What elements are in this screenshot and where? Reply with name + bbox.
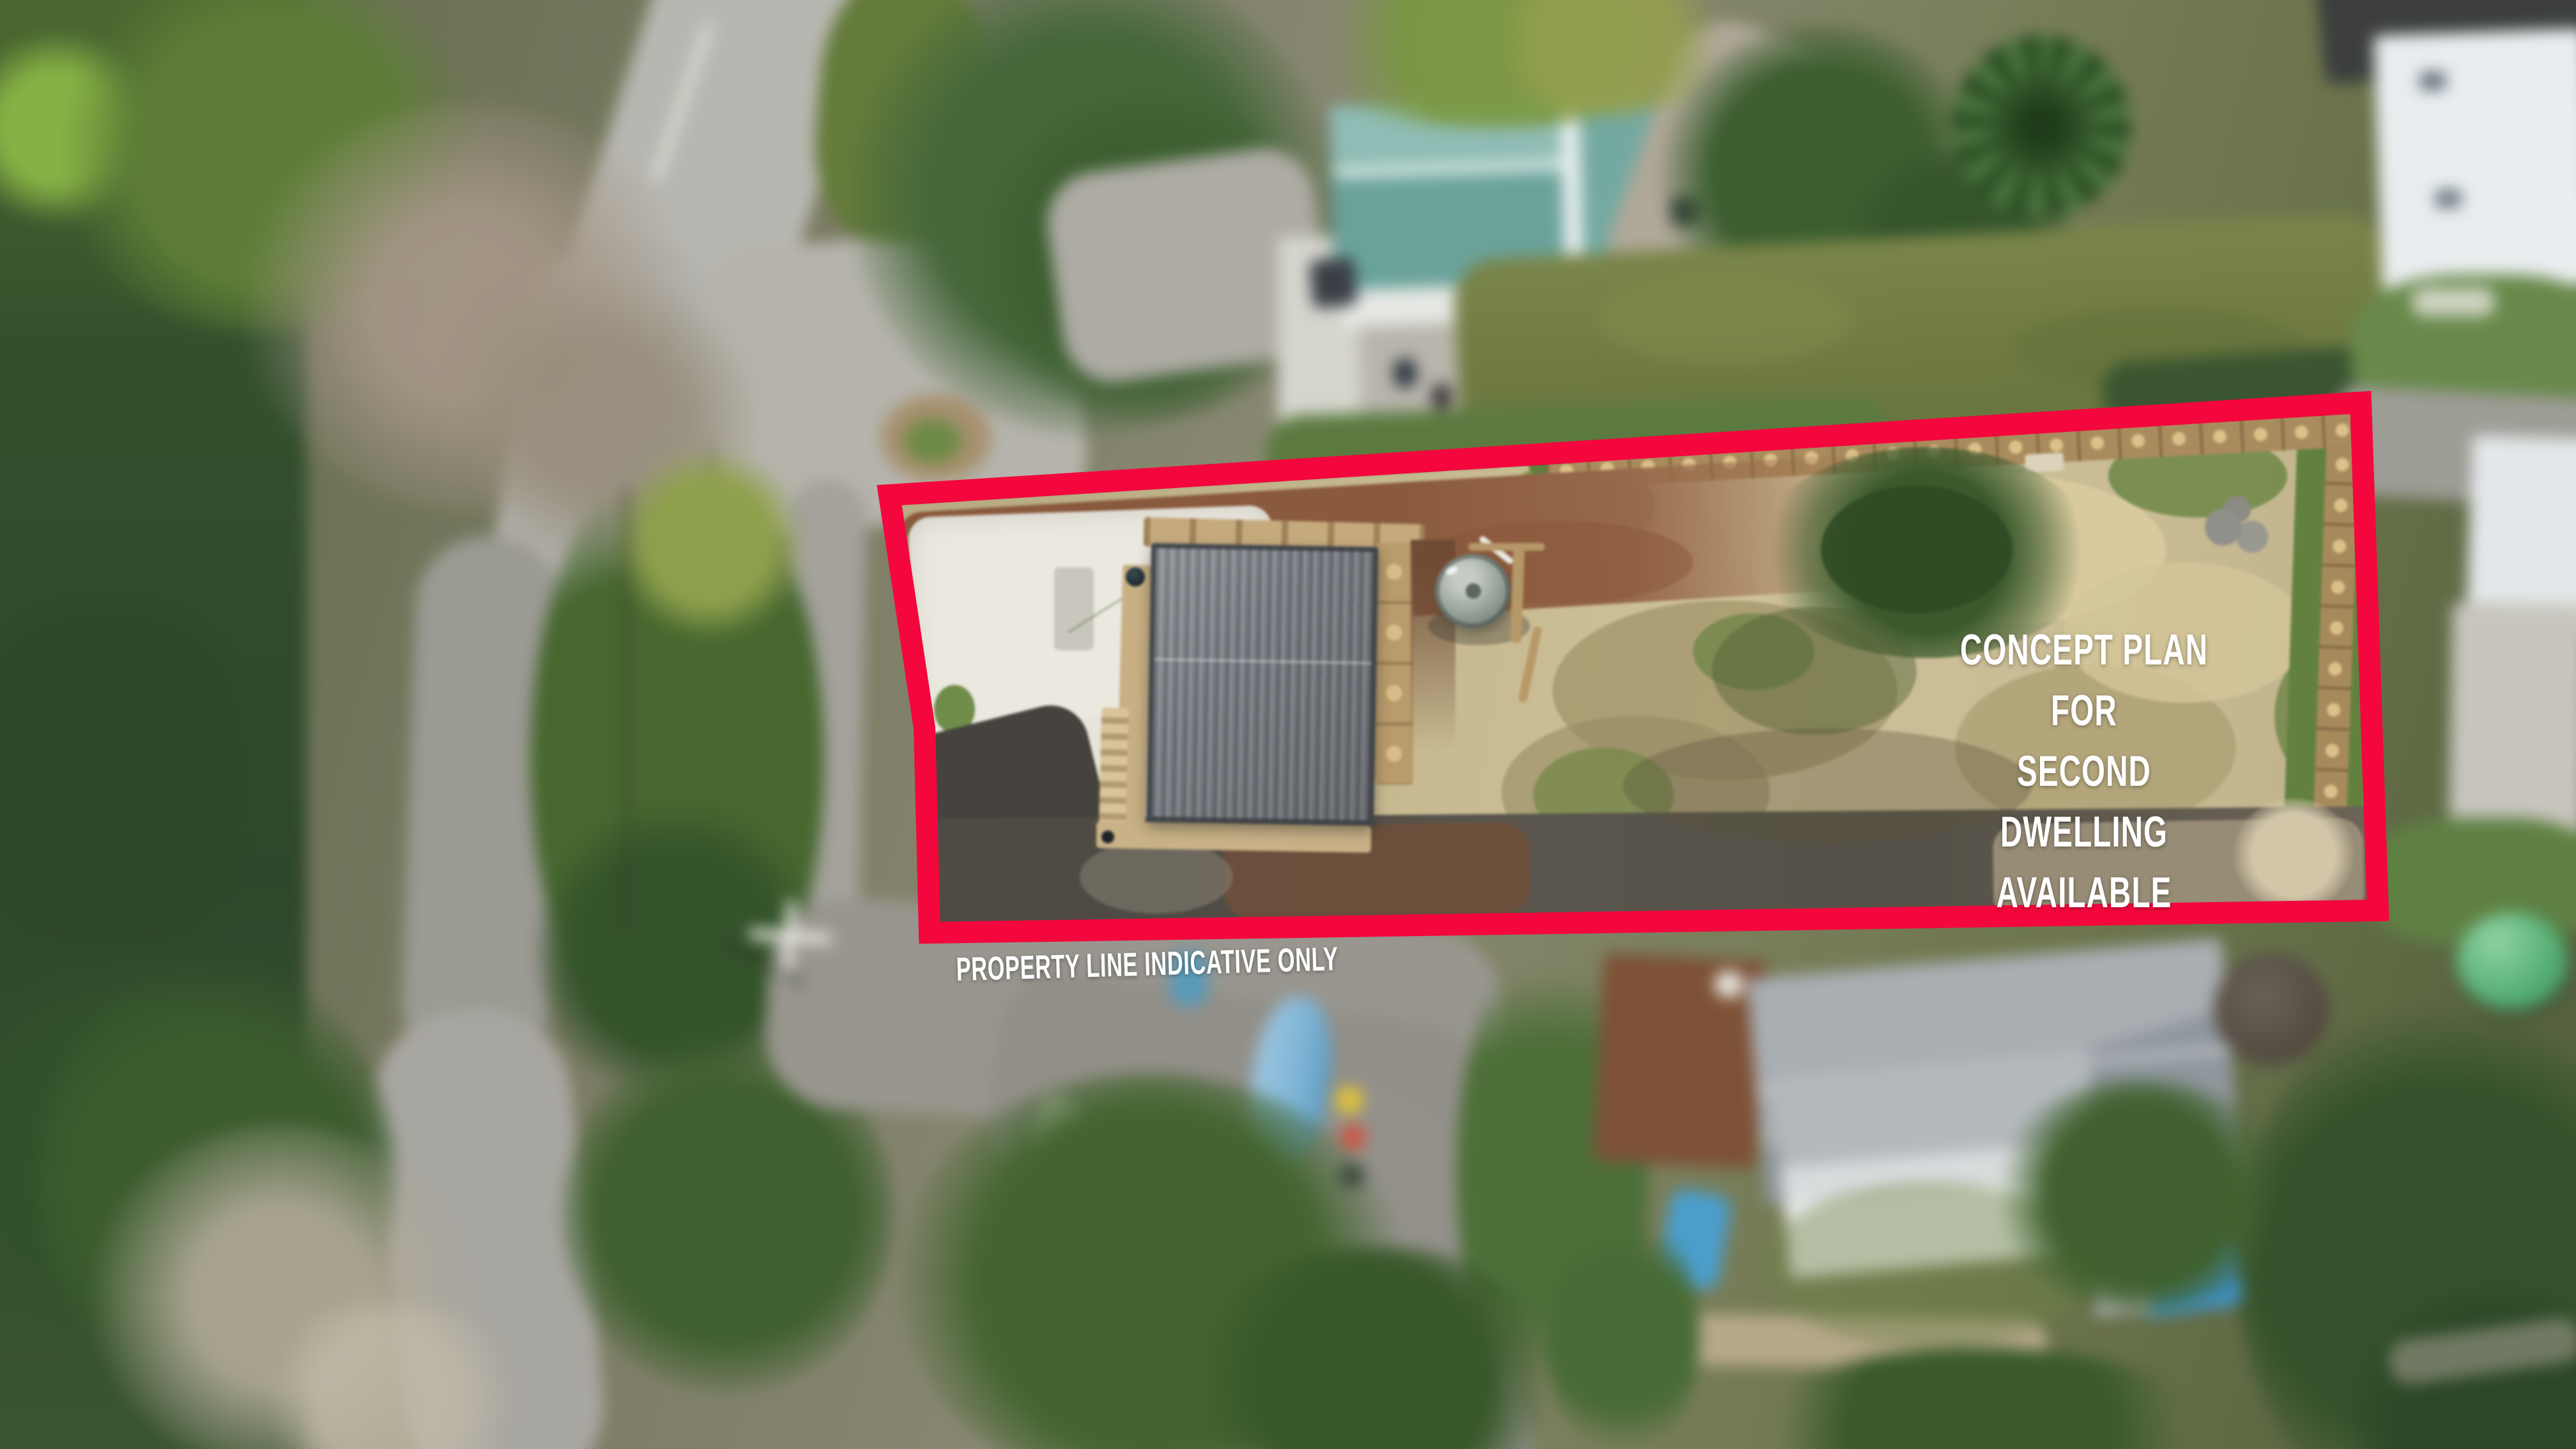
- aerial-photo: CONCEPT PLAN FOR SECOND DWELLING AVAILAB…: [0, 0, 2576, 1449]
- concept-plan-headline: CONCEPT PLAN FOR SECOND DWELLING AVAILAB…: [1945, 620, 2223, 923]
